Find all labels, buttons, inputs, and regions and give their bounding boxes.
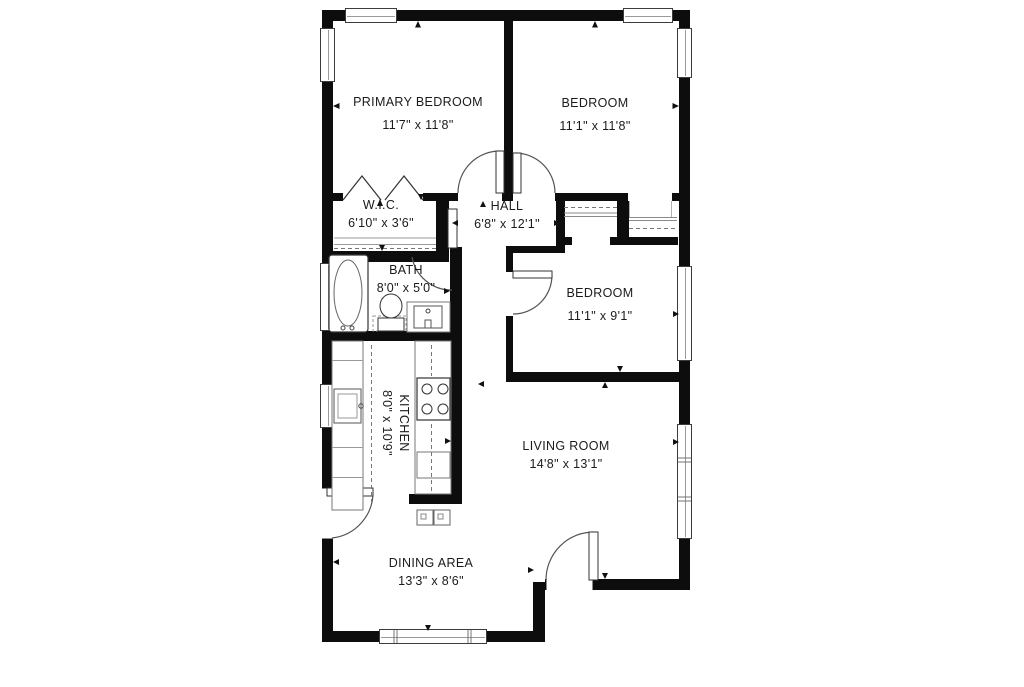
wall-kitchen-right xyxy=(451,341,462,504)
entry-door-leaf xyxy=(589,532,598,580)
room-name: BEDROOM xyxy=(559,92,630,115)
wall-bedroom3-top xyxy=(506,246,565,253)
bath-door-leaf xyxy=(448,209,457,248)
room-label-hall: HALL 6'8" x 12'1" xyxy=(474,197,540,233)
window xyxy=(623,8,673,23)
room-label-bedroom-3: BEDROOM 11'1" x 9'1" xyxy=(566,282,633,328)
window xyxy=(320,384,335,428)
toilet xyxy=(380,294,402,318)
kitchen-sink xyxy=(334,389,361,423)
wall-kitchen-top xyxy=(322,331,462,341)
primary-bedroom-door-leaf xyxy=(496,151,504,193)
room-name: KITCHEN xyxy=(395,390,412,456)
room-label-living-room: LIVING ROOM 14'8" x 13'1" xyxy=(522,437,609,473)
window xyxy=(677,266,692,361)
room-name: LIVING ROOM xyxy=(522,437,609,455)
floor-plan: PRIMARY BEDROOM 11'7" x 11'8" BEDROOM 11… xyxy=(0,0,1024,687)
opening-entry-door xyxy=(546,579,593,590)
room-name: W.I.C. xyxy=(348,196,414,214)
wall-bedroom3-bottom xyxy=(506,372,690,382)
room-label-dining-area: DINING AREA 13'3" x 8'6" xyxy=(389,554,473,590)
room-dims: 8'0" x 5'0" xyxy=(377,279,436,297)
window xyxy=(379,629,487,644)
room-dims: 14'8" x 13'1" xyxy=(522,455,609,473)
room-dims: 11'7" x 11'8" xyxy=(353,114,483,137)
wall-closet-bottom xyxy=(610,237,678,245)
opening-closet-passage xyxy=(628,193,672,201)
appliance-box xyxy=(417,510,433,525)
kitchen-faucet xyxy=(359,404,363,408)
window xyxy=(320,28,335,82)
wall-kitchen-stub xyxy=(409,494,462,504)
bedroom3-door-arc xyxy=(513,275,552,314)
entry-door-arc xyxy=(546,532,594,580)
room-dims: 6'10" x 3'6" xyxy=(348,214,414,232)
bedroom3-door-leaf xyxy=(513,271,552,278)
opening-bedroom3-door xyxy=(505,272,514,316)
kitchen-cabinet xyxy=(417,452,450,478)
bedroom2-door-arc xyxy=(515,153,555,193)
room-dims: 13'3" x 8'6" xyxy=(389,572,473,590)
room-dims: 6'8" x 12'1" xyxy=(474,215,540,233)
kitchen-counter-right xyxy=(415,341,451,494)
window xyxy=(345,8,397,23)
side-door-leaf xyxy=(327,488,373,496)
window xyxy=(320,263,335,331)
room-name: BEDROOM xyxy=(566,282,633,305)
appliance-box xyxy=(434,510,450,525)
stove xyxy=(417,378,450,420)
room-label-primary-bedroom: PRIMARY BEDROOM 11'7" x 11'8" xyxy=(353,91,483,137)
room-name: HALL xyxy=(474,197,540,215)
primary-bedroom-door-arc xyxy=(458,151,500,193)
room-label-bedroom-2: BEDROOM 11'1" x 11'8" xyxy=(559,92,630,138)
room-name: PRIMARY BEDROOM xyxy=(353,91,483,114)
kitchen-counter-left xyxy=(332,341,363,510)
room-dims: 11'1" x 11'8" xyxy=(559,115,630,138)
wall-wic-right xyxy=(436,193,449,253)
window xyxy=(677,424,692,539)
wall-bedroom-divider xyxy=(504,10,513,200)
room-label-wic: W.I.C. 6'10" x 3'6" xyxy=(348,196,414,232)
side-door-arc xyxy=(332,492,373,538)
room-label-kitchen: KITCHEN 8'0" x 10'9" xyxy=(378,390,412,456)
room-label-bath: BATH 8'0" x 5'0" xyxy=(377,261,436,297)
wall-step-vertical xyxy=(533,582,545,642)
room-name: BATH xyxy=(377,261,436,279)
vanity-sink xyxy=(414,306,442,328)
wall-bath-right xyxy=(450,247,462,341)
vanity xyxy=(407,302,450,332)
bedroom2-door-leaf xyxy=(513,153,521,193)
room-name: DINING AREA xyxy=(389,554,473,572)
opening-side-door xyxy=(322,488,333,539)
room-dims: 11'1" x 9'1" xyxy=(566,305,633,328)
wall-closet-tab xyxy=(556,237,572,245)
room-dims: 8'0" x 10'9" xyxy=(378,390,395,456)
window xyxy=(677,28,692,78)
